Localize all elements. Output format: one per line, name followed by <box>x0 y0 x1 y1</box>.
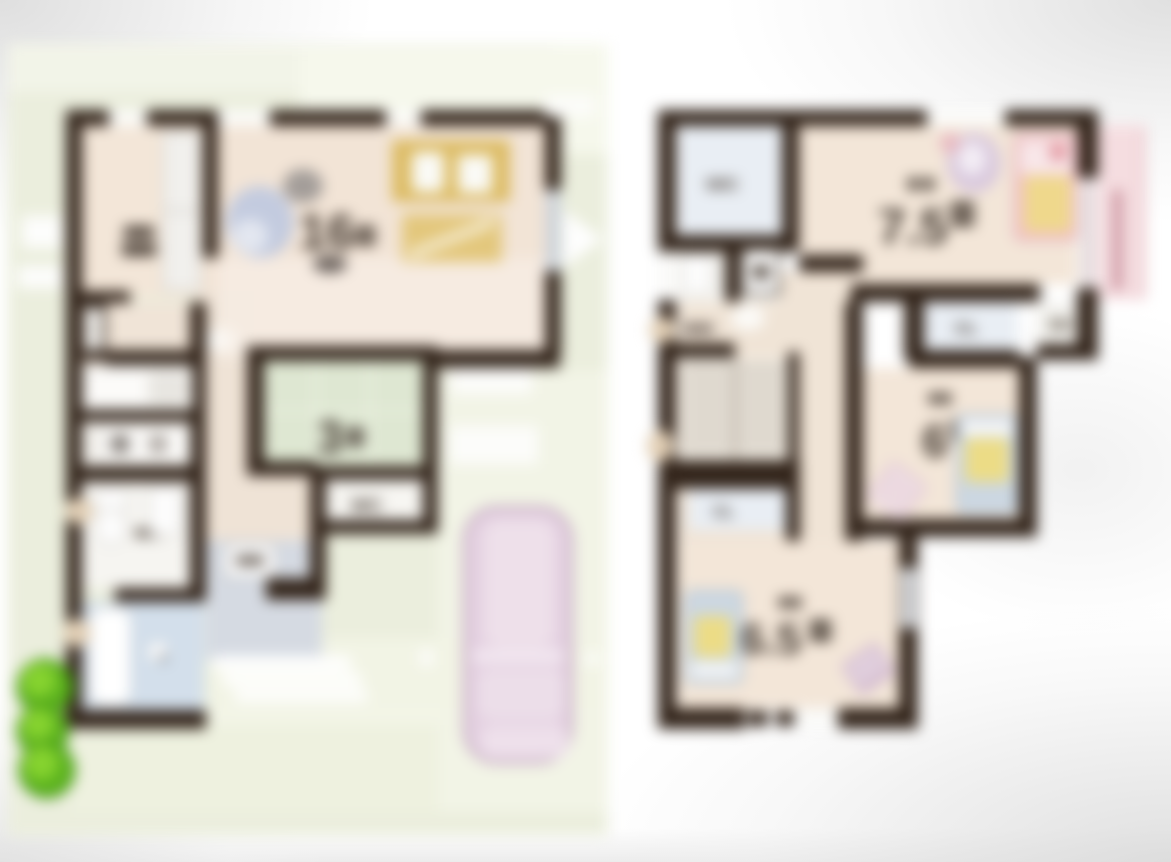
svg-text:7.5: 7.5 <box>878 199 948 255</box>
svg-text:WIC: WIC <box>706 175 739 194</box>
svg-text:CL: CL <box>713 504 735 521</box>
svg-text:6: 6 <box>922 415 948 467</box>
svg-text:WC: WC <box>351 496 383 517</box>
svg-text:6.5: 6.5 <box>740 615 801 664</box>
svg-text:3: 3 <box>317 411 343 463</box>
svg-text:16: 16 <box>299 204 355 260</box>
svg-text:CL: CL <box>955 319 978 338</box>
